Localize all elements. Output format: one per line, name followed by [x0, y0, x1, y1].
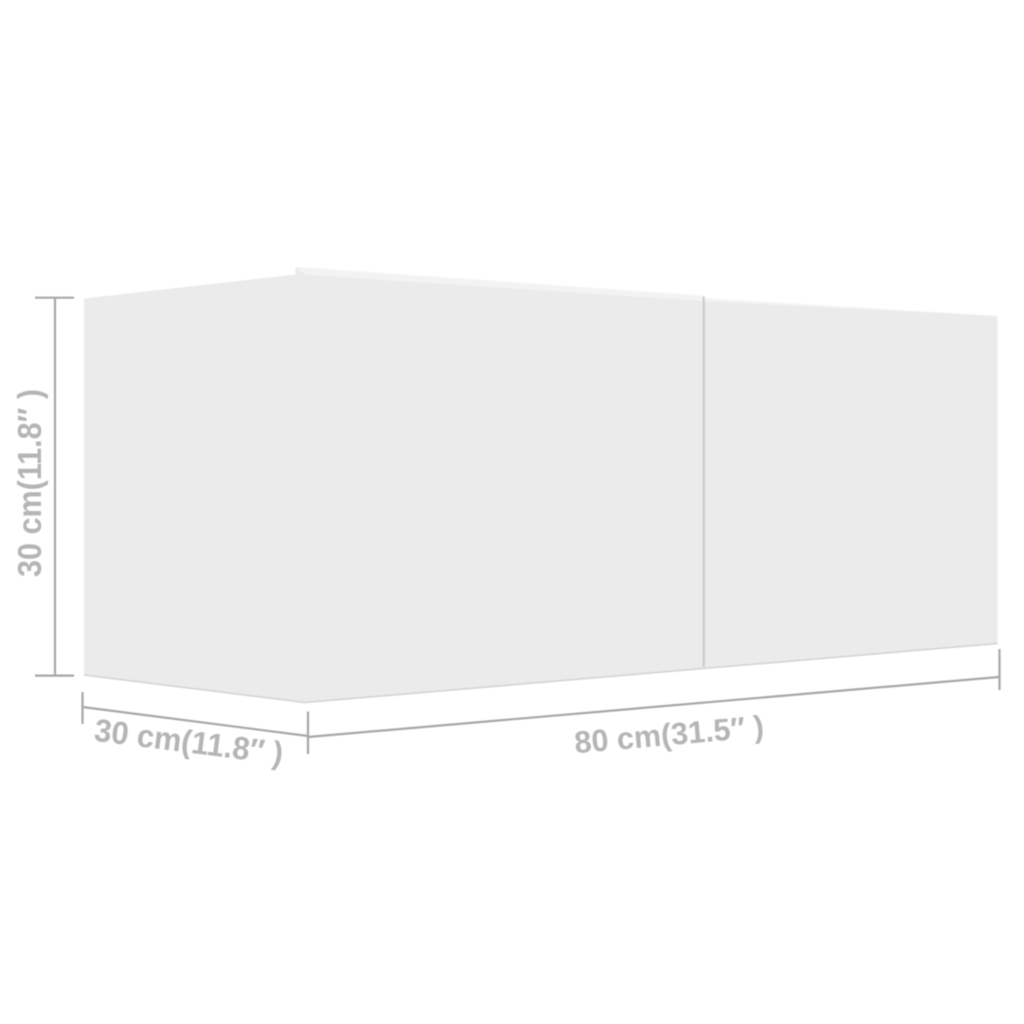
svg-text:30 cm(11.8″ ): 30 cm(11.8″ ) — [11, 389, 48, 577]
